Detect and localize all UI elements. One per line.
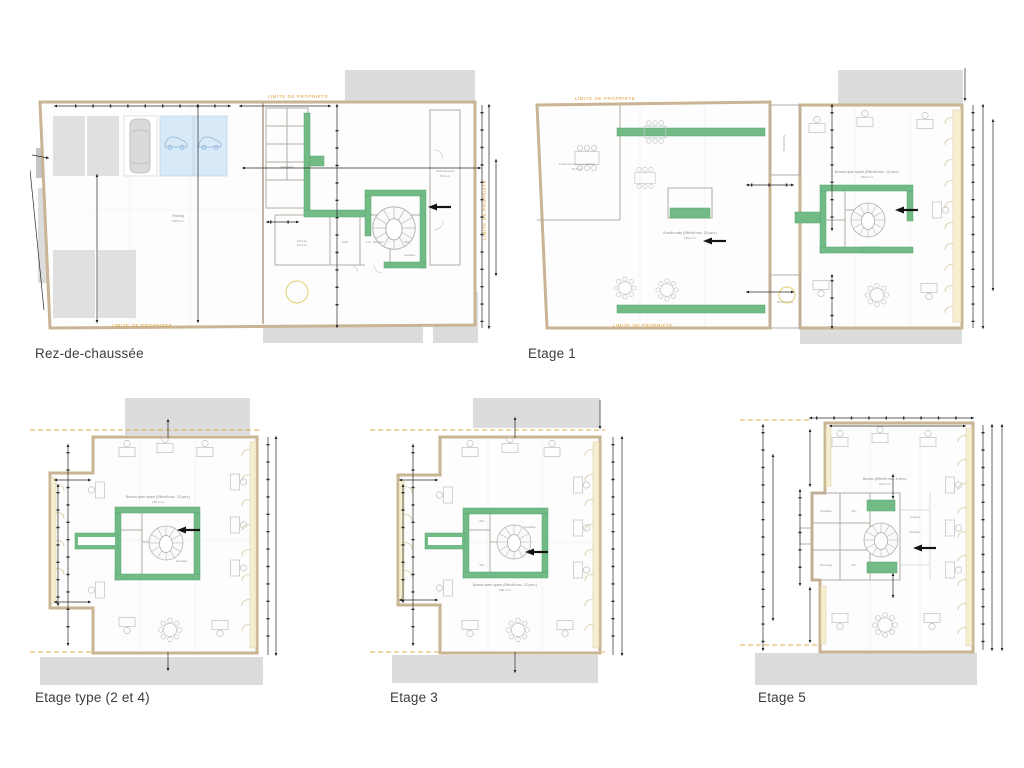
svg-text:WC: WC — [479, 563, 485, 567]
svg-text:Vestiaire: Vestiaire — [524, 525, 536, 529]
plan-title-e3: Etage 3 — [390, 690, 438, 705]
svg-text:Bureau open space (Effectif ma: Bureau open space (Effectif max. 22 pers… — [473, 583, 537, 587]
plan-e5-drawing: Bureau (Effectif max. 4 pers.) 110,2 m² … — [740, 390, 1020, 690]
svg-text:15,3 m²: 15,3 m² — [440, 174, 451, 178]
svg-text:Bureau open space (Effectif ma: Bureau open space (Effectif max. 22 pers… — [835, 170, 899, 174]
plan-etage-1: Local technique ventilation 31,5 m² Gran… — [525, 60, 1005, 345]
svg-text:LIMITE DE PROPRIETE: LIMITE DE PROPRIETE — [112, 323, 173, 328]
plan-title-e1: Etage 1 — [528, 346, 576, 361]
floorplan-sheet: Parking 182,5 m² Vestiaires Fitness 13,5… — [0, 0, 1024, 768]
spiral-stair — [497, 525, 531, 559]
svg-text:Grande salle (Effectif max. 32: Grande salle (Effectif max. 32 pers.) — [663, 231, 717, 235]
svg-text:LIMITE DE PROPRIETE: LIMITE DE PROPRIETE — [268, 94, 329, 99]
svg-text:31,5 m²: 31,5 m² — [572, 167, 583, 171]
spiral-stair — [851, 203, 885, 237]
svg-text:Loc. déchets: Loc. déchets — [366, 240, 384, 244]
svg-text:LIMITE DE PROPRIETE: LIMITE DE PROPRIETE — [613, 323, 674, 328]
spiral-stair — [149, 526, 183, 560]
plan-e3-drawing: WC WC Vestiaire Bureau open space (Effec… — [370, 390, 680, 690]
plan-rez-de-chaussee: Parking 182,5 m² Vestiaires Fitness 13,5… — [30, 60, 500, 345]
plan-etage-5: Bureau (Effectif max. 4 pers.) 110,2 m² … — [740, 390, 1020, 690]
plan-title-e24: Etage type (2 et 4) — [35, 690, 150, 705]
svg-text:13,5 m²: 13,5 m² — [297, 243, 308, 247]
svg-text:TERRASSE: TERRASSE — [782, 135, 786, 152]
plan-e24-drawing: Bureau open space (Effectif max. 22 pers… — [30, 390, 340, 690]
plan-rdc-drawing: Parking 182,5 m² Vestiaires Fitness 13,5… — [30, 60, 500, 345]
spiral-stair — [864, 523, 898, 557]
neighbor-buildings — [755, 653, 977, 685]
svg-text:SAS: SAS — [342, 240, 348, 244]
svg-text:140,2 m²: 140,2 m² — [684, 236, 696, 240]
svg-text:Escalier: Escalier — [176, 559, 187, 563]
svg-text:Dressing: Dressing — [820, 563, 832, 567]
svg-text:180,2 m²: 180,2 m² — [152, 500, 164, 504]
svg-text:Escalier: Escalier — [404, 253, 415, 257]
svg-text:Local technique ventilation: Local technique ventilation — [559, 162, 596, 166]
plan-etage-3: WC WC Vestiaire Bureau open space (Effec… — [370, 390, 680, 690]
svg-text:Bureau open space (Effectif ma: Bureau open space (Effectif max. 22 pers… — [126, 495, 190, 499]
plan-title-rdc: Rez-de-chaussée — [35, 346, 144, 361]
svg-text:WC: WC — [851, 563, 857, 567]
svg-text:110,2 m²: 110,2 m² — [879, 482, 891, 486]
svg-text:Cuisine: Cuisine — [910, 515, 921, 519]
svg-text:WC: WC — [851, 509, 857, 513]
plan-e1-drawing: Local technique ventilation 31,5 m² Gran… — [525, 60, 1005, 345]
svg-text:WC: WC — [404, 240, 410, 244]
svg-text:LIMITE DE PROPRIETE: LIMITE DE PROPRIETE — [575, 96, 636, 101]
svg-text:Bureau (Effectif max. 4 pers.): Bureau (Effectif max. 4 pers.) — [863, 477, 907, 481]
svg-text:Hall d'accueil: Hall d'accueil — [436, 169, 454, 173]
plan-title-e5: Etage 5 — [758, 690, 806, 705]
parking-label: Parking — [172, 214, 184, 218]
svg-text:LIMITE DE PROPRIETE: LIMITE DE PROPRIETE — [482, 180, 487, 241]
svg-text:Vestiaires: Vestiaires — [280, 165, 294, 169]
svg-text:180,2 m²: 180,2 m² — [861, 175, 873, 179]
svg-text:180,2 m²: 180,2 m² — [499, 588, 511, 592]
svg-text:Escalier: Escalier — [909, 530, 920, 534]
svg-text:WC: WC — [479, 519, 485, 523]
plan-etage-type-2-4: Bureau open space (Effectif max. 22 pers… — [30, 390, 340, 690]
svg-text:Vestiaire: Vestiaire — [820, 509, 832, 513]
parking-area-label: 182,5 m² — [172, 219, 184, 223]
car-top-icon — [130, 119, 150, 173]
